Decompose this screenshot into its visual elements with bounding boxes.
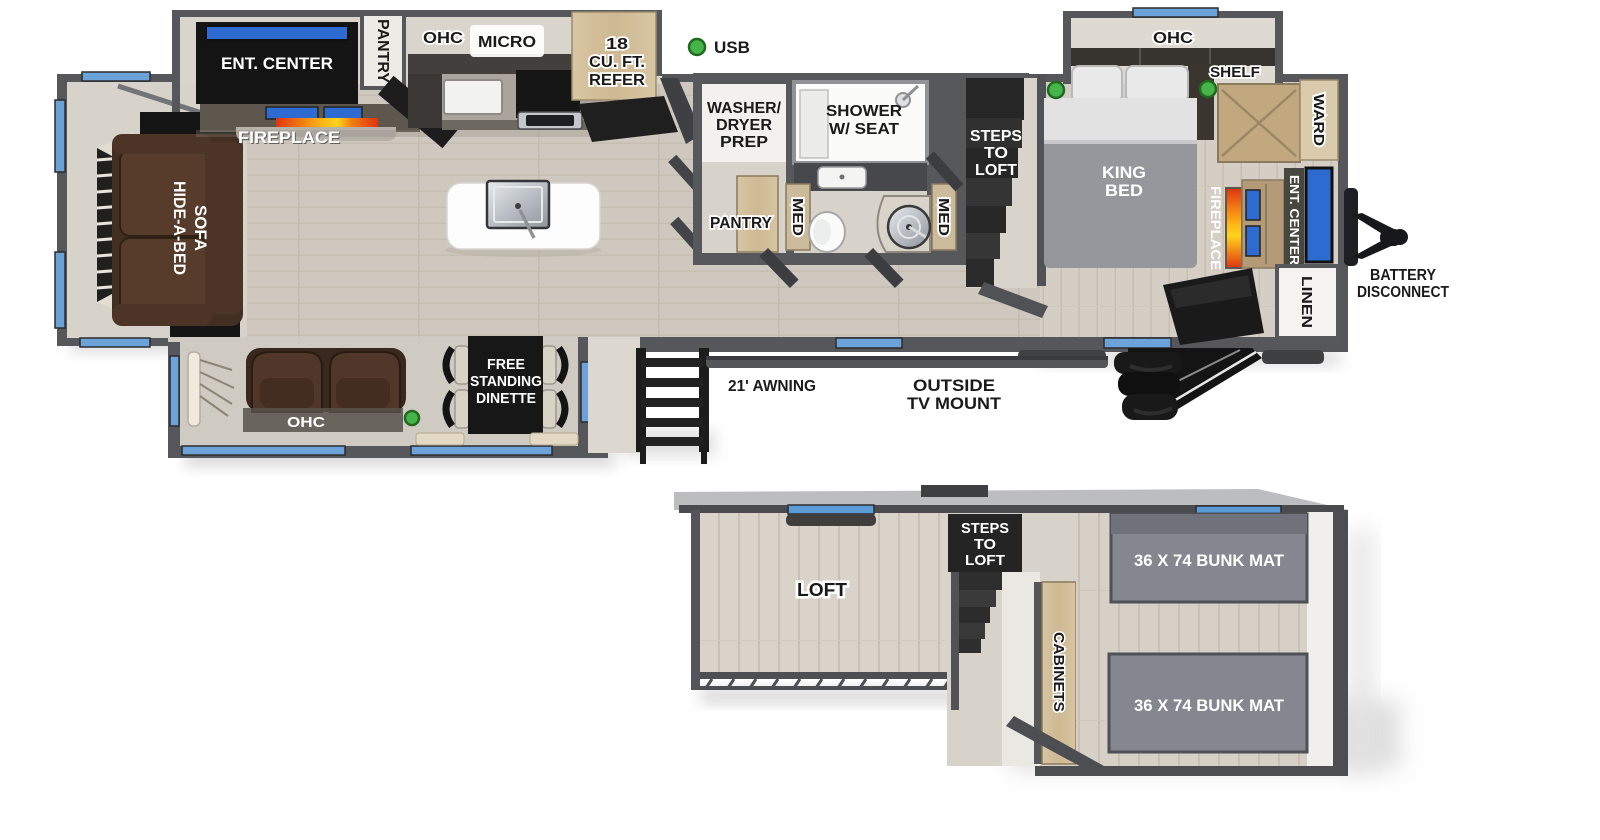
svg-text:DRYER: DRYER: [716, 117, 772, 134]
svg-text:WASHER/: WASHER/: [707, 100, 782, 117]
svg-text:DISCONNECT: DISCONNECT: [1357, 284, 1449, 301]
svg-text:ENT. CENTER: ENT. CENTER: [221, 54, 333, 73]
svg-text:TO: TO: [974, 536, 996, 553]
svg-text:REFER: REFER: [589, 72, 645, 89]
svg-text:OHC: OHC: [287, 414, 325, 431]
svg-text:SHELF: SHELF: [1210, 64, 1260, 81]
svg-text:LINEN: LINEN: [1298, 276, 1315, 328]
svg-text:OHC: OHC: [423, 30, 463, 47]
svg-text:SOFA: SOFA: [191, 205, 210, 251]
svg-text:LOFT: LOFT: [975, 162, 1017, 179]
svg-text:PANTRY: PANTRY: [374, 19, 391, 83]
svg-text:PANTRY: PANTRY: [710, 215, 772, 232]
svg-text:MICRO: MICRO: [478, 34, 536, 51]
svg-text:STEPS: STEPS: [961, 520, 1009, 537]
svg-text:OHC: OHC: [1153, 30, 1193, 47]
svg-text:W/ SEAT: W/ SEAT: [829, 121, 899, 138]
svg-text:OUTSIDE: OUTSIDE: [913, 376, 995, 395]
svg-text:FIREPLACE: FIREPLACE: [238, 128, 340, 147]
svg-text:DINETTE: DINETTE: [476, 390, 536, 407]
svg-text:TO: TO: [984, 145, 1008, 162]
svg-text:FREE: FREE: [487, 356, 525, 373]
svg-text:36 X 74 BUNK MAT: 36 X 74 BUNK MAT: [1134, 696, 1285, 715]
svg-text:36 X 74 BUNK MAT: 36 X 74 BUNK MAT: [1134, 551, 1285, 570]
svg-text:WARD: WARD: [1310, 94, 1327, 146]
svg-text:HIDE-A-BED: HIDE-A-BED: [170, 181, 189, 275]
svg-text:BATTERY: BATTERY: [1370, 267, 1436, 284]
svg-text:BED: BED: [1105, 181, 1143, 200]
svg-text:MED: MED: [789, 198, 806, 236]
svg-text:LOFT: LOFT: [965, 552, 1005, 569]
svg-text:USB: USB: [714, 38, 750, 57]
svg-text:TV MOUNT: TV MOUNT: [907, 394, 1002, 413]
svg-text:STEPS: STEPS: [970, 128, 1022, 145]
svg-text:18: 18: [606, 36, 628, 53]
svg-text:KING: KING: [1102, 163, 1146, 182]
svg-text:PREP: PREP: [720, 134, 768, 151]
svg-text:STANDING: STANDING: [470, 373, 542, 390]
svg-text:CU. FT.: CU. FT.: [589, 54, 645, 71]
svg-text:CABINETS: CABINETS: [1050, 632, 1067, 712]
svg-text:21' AWNING: 21' AWNING: [728, 378, 816, 395]
svg-text:MED: MED: [935, 198, 952, 236]
svg-text:ENT. CENTER: ENT. CENTER: [1287, 175, 1302, 266]
svg-text:SHOWER: SHOWER: [826, 103, 902, 120]
svg-text:FIREPLACE: FIREPLACE: [1208, 186, 1224, 270]
svg-text:LOFT: LOFT: [797, 580, 847, 600]
